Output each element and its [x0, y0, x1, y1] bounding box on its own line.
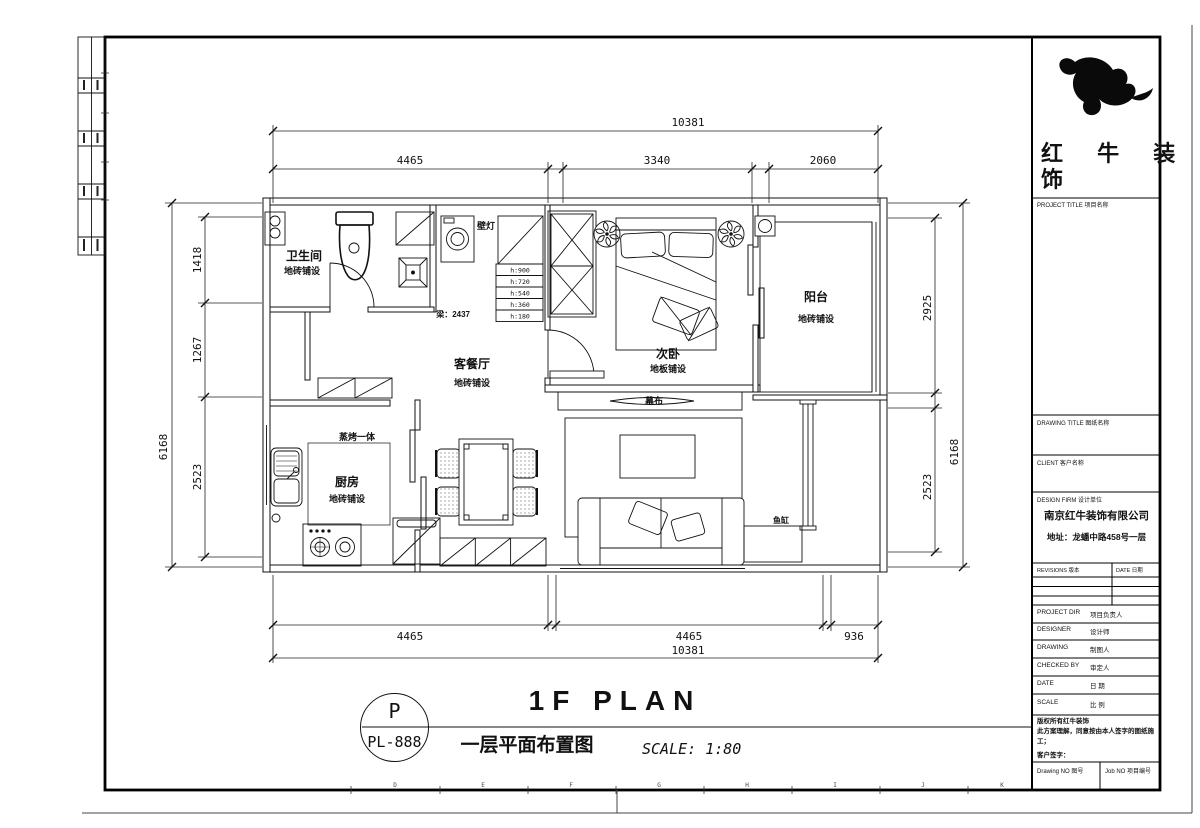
grid-letter: G: [657, 782, 661, 789]
dim-right-seg: 2925: [921, 295, 934, 322]
floor-label-kitchen: 地砖铺设: [329, 493, 366, 504]
tb-drawing-title: DRAWING TITLE 图纸名称: [1037, 418, 1109, 427]
grid-letter: E: [481, 782, 485, 789]
dim-bottom-seg: 4465: [676, 630, 703, 643]
tb-row-value: 项目负责人: [1090, 609, 1123, 619]
tb-note-line: 客户签字：: [1037, 751, 1156, 761]
tb-date-header: DATE 日期: [1116, 566, 1143, 574]
drawing-sheet: D E F G H I J K: [0, 0, 1200, 828]
shelf-height-label: h:900: [510, 267, 530, 275]
tb-client: CLIENT 客户名称: [1037, 458, 1084, 467]
floor-label-bathroom: 地砖铺设: [284, 265, 321, 276]
grid-letter: J: [921, 782, 925, 789]
wardrobe: [548, 211, 596, 317]
screen-label: 幕布: [644, 395, 663, 406]
tb-notes: 版权所有红牛装饰 此方案理解，同意按由本人签字的图纸施工； 客户签字：: [1037, 717, 1156, 761]
tb-firm-address: 地址：龙蟠中路458号一层: [1033, 531, 1160, 543]
tb-row-label: DATE: [1037, 680, 1054, 687]
brand-logo: [1059, 57, 1153, 115]
tv-cabinet: [440, 538, 546, 566]
brand-name-line2: 饰: [1041, 162, 1063, 194]
plan-scale: SCALE: 1:80: [642, 740, 792, 758]
tb-row-label: SCALE: [1037, 699, 1058, 706]
fish-tank-label: 鱼缸: [773, 515, 789, 525]
room-label-kitchen: 厨房: [335, 474, 359, 489]
shelf-height-label: h:360: [510, 301, 530, 309]
shelf-height-label: h:540: [510, 290, 530, 298]
tb-job-no: Job NO 项目编号: [1105, 766, 1151, 775]
stamp-code: PL-888: [367, 735, 421, 750]
steam-oven-label: 蒸烤一体: [339, 431, 376, 442]
grid-letter: K: [1000, 782, 1004, 789]
dim-left-seg: 1418: [191, 247, 204, 274]
tb-row-label: DRAWING: [1037, 644, 1068, 651]
plan-title-en: 1F PLAN: [455, 685, 775, 717]
grid-letter: H: [745, 782, 749, 789]
tb-row-label: PROJECT DIR: [1037, 609, 1080, 616]
balcony-fixtures: [755, 216, 872, 392]
dim-right-overall: 6168: [948, 439, 961, 466]
tb-row-value: 日 期: [1090, 680, 1105, 690]
dim-left-seg: 1267: [191, 337, 204, 364]
dimension-lines: [165, 125, 970, 663]
tb-revisions-header: REVISIONS 版本: [1037, 566, 1079, 574]
tb-drawing-no: Drawing NO 图号: [1037, 766, 1083, 775]
tb-note-line: 版权所有红牛装饰: [1037, 717, 1156, 727]
tb-firm-name: 南京红牛装饰有限公司: [1033, 508, 1160, 523]
tb-row-value: 设计师: [1090, 626, 1110, 636]
tb-note-line: 此方案理解，同意按由本人签字的图纸施工；: [1037, 727, 1156, 747]
tb-row-value: 制图人: [1090, 644, 1110, 654]
fish-tank: [744, 526, 802, 562]
tb-row-value: 比 例: [1090, 699, 1105, 709]
dim-bottom-seg: 936: [844, 630, 864, 643]
tb-design-firm: DESIGN FIRM 设计单位: [1037, 495, 1102, 504]
ceiling-fan-icon: [718, 221, 744, 247]
dim-top-overall: 10381: [671, 116, 704, 129]
shelf-height-label: h:720: [510, 278, 530, 286]
room-label-balcony: 阳台: [804, 289, 828, 304]
room-label-bedroom: 次卧: [656, 346, 680, 361]
floor-plan-walls: [263, 198, 887, 572]
dim-top-seg: 4465: [397, 154, 424, 167]
drawing-number-stamp: P PL-888: [360, 693, 429, 762]
stamp-letter: P: [388, 701, 400, 721]
floor-label-bedroom: 地板铺设: [650, 363, 687, 374]
tb-project-title: PROJECT TITLE 项目名称: [1037, 200, 1108, 209]
grid-letter: D: [393, 782, 397, 789]
dining-set: [436, 439, 537, 525]
floor-label-balcony: 地砖铺设: [798, 313, 835, 324]
tb-row-value: 审定人: [1090, 662, 1110, 672]
grid-letters: D E F G H I J K: [393, 782, 1004, 789]
grid-letter: I: [833, 782, 837, 789]
tb-row-label: DESIGNER: [1037, 626, 1071, 633]
floor-label-living: 地砖铺设: [454, 377, 491, 388]
dim-left-overall: 6168: [157, 434, 170, 461]
sofa: [578, 498, 744, 565]
wall-lamp-label: 壁灯: [477, 220, 495, 231]
dim-top-seg: 2060: [810, 154, 837, 167]
room-label-bathroom: 卫生间: [286, 248, 322, 263]
room-label-living: 客餐厅: [453, 356, 490, 371]
kitchen-fixtures: [271, 443, 390, 566]
beam-label: 梁：2437: [435, 309, 470, 319]
dim-bottom-overall: 10381: [671, 644, 704, 657]
tb-row-label: CHECKED BY: [1037, 662, 1079, 669]
shelf-height-label: h:180: [510, 313, 530, 321]
dim-bottom-seg: 4465: [397, 630, 424, 643]
plan-title-cn: 一层平面布置图: [438, 730, 616, 757]
grid-letter: F: [569, 782, 573, 789]
dim-left-seg: 2523: [191, 464, 204, 491]
bed: [616, 218, 719, 350]
fold-strip-marks: [83, 80, 99, 251]
dim-top-seg: 3340: [644, 154, 671, 167]
dim-right-seg: 2523: [921, 474, 934, 501]
fold-strip: [78, 37, 105, 255]
